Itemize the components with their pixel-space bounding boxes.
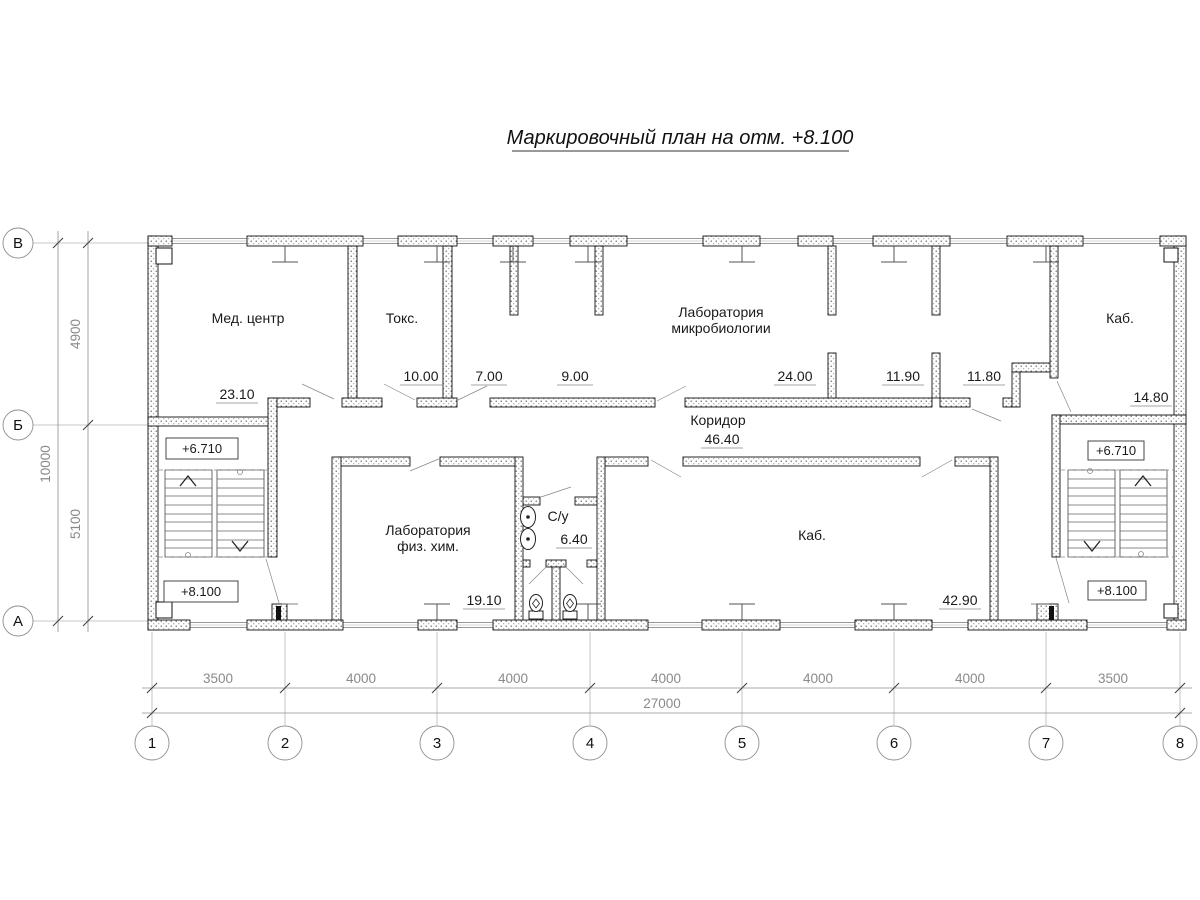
- room-label-kab-small: Каб.: [1106, 310, 1134, 326]
- floor-plan-drawing: Маркировочный план на отм. +8.100 3500: [0, 0, 1200, 900]
- dim-left-1: 4900: [68, 319, 83, 349]
- elevation-left-lower: +8.100: [181, 584, 221, 599]
- door-leaves: [276, 604, 1054, 620]
- dim-bottom-5: 4000: [803, 671, 833, 686]
- axis-col-2: 2: [281, 735, 289, 752]
- elevation-right-upper: +6.710: [1096, 443, 1136, 458]
- page-title: Маркировочный план на отм. +8.100: [507, 127, 854, 149]
- dim-left-total: 10000: [38, 445, 53, 483]
- room-label-lab-phys-line2: физ. хим.: [397, 538, 459, 554]
- dim-bottom-3: 4000: [498, 671, 528, 686]
- floor-plan-page: Маркировочный план на отм. +8.100 3500: [0, 0, 1200, 900]
- dimension-grid: [33, 231, 1192, 725]
- room-label-med-center: Мед. центр: [212, 310, 285, 326]
- dim-bottom-6: 4000: [955, 671, 985, 686]
- stair-arrow-down-icon: [232, 541, 248, 551]
- dim-bottom-4: 4000: [651, 671, 681, 686]
- axis-col-8: 8: [1176, 735, 1184, 752]
- axis-row-a: А: [13, 613, 23, 630]
- area-label-toks: 10.00: [403, 368, 438, 384]
- door-leaf-icon: [1049, 606, 1054, 620]
- stair-arrow-up-icon: [180, 476, 196, 486]
- axis-col-5: 5: [738, 735, 746, 752]
- dim-bottom-2: 4000: [346, 671, 376, 686]
- area-label-lab-phys: 19.10: [466, 592, 501, 608]
- elevation-right-lower: +8.100: [1097, 583, 1137, 598]
- room-label-corridor: Коридор: [690, 412, 746, 428]
- axis-col-6: 6: [890, 735, 898, 752]
- dim-bottom-1: 3500: [203, 671, 233, 686]
- area-label-room-9: 9.00: [561, 368, 588, 384]
- door-leader-lines: [266, 381, 1071, 603]
- area-label-kab-small: 14.80: [1133, 389, 1168, 405]
- staircase-right: [1060, 469, 1174, 558]
- room-label-lab-micro-line1: Лаборатория: [678, 304, 763, 320]
- area-label-room-11-80: 11.80: [967, 368, 1001, 384]
- area-label-lab-micro: 24.00: [777, 368, 812, 384]
- staircase-left: [158, 470, 268, 558]
- area-label-su: 6.40: [560, 531, 587, 547]
- dim-bottom-total: 27000: [643, 696, 681, 711]
- room-label-toks: Токс.: [386, 310, 418, 326]
- axis-row-b: Б: [13, 417, 23, 434]
- window-mark-icons: [272, 246, 1059, 620]
- room-label-kab-large: Каб.: [798, 527, 826, 543]
- area-label-room-7: 7.00: [475, 368, 502, 384]
- corner-blocks: [156, 248, 1178, 618]
- window-lines: [172, 239, 1167, 628]
- stair-arrow-up-icon: [1135, 476, 1151, 486]
- axis-col-3: 3: [433, 735, 441, 752]
- door-leaf-icon: [276, 606, 281, 620]
- dim-bottom-7: 3500: [1098, 671, 1128, 686]
- walls: [148, 236, 1186, 630]
- axis-col-7: 7: [1042, 735, 1050, 752]
- dim-left-2: 5100: [68, 509, 83, 539]
- area-label-med-center: 23.10: [219, 386, 254, 402]
- area-label-kab-large: 42.90: [942, 592, 977, 608]
- room-label-lab-micro-line2: микробиологии: [671, 320, 770, 336]
- elevation-left-upper: +6.710: [182, 441, 222, 456]
- axis-row-v: В: [13, 235, 23, 252]
- room-label-su: С/у: [548, 508, 569, 524]
- area-label-corridor: 46.40: [704, 431, 739, 447]
- room-label-lab-phys-line1: Лаборатория: [385, 522, 470, 538]
- area-label-room-11-90: 11.90: [886, 368, 920, 384]
- stair-arrow-down-icon: [1084, 541, 1100, 551]
- drawing-title: Маркировочный план на отм. +8.100: [507, 127, 854, 151]
- axis-col-4: 4: [586, 735, 594, 752]
- axis-col-1: 1: [148, 735, 156, 752]
